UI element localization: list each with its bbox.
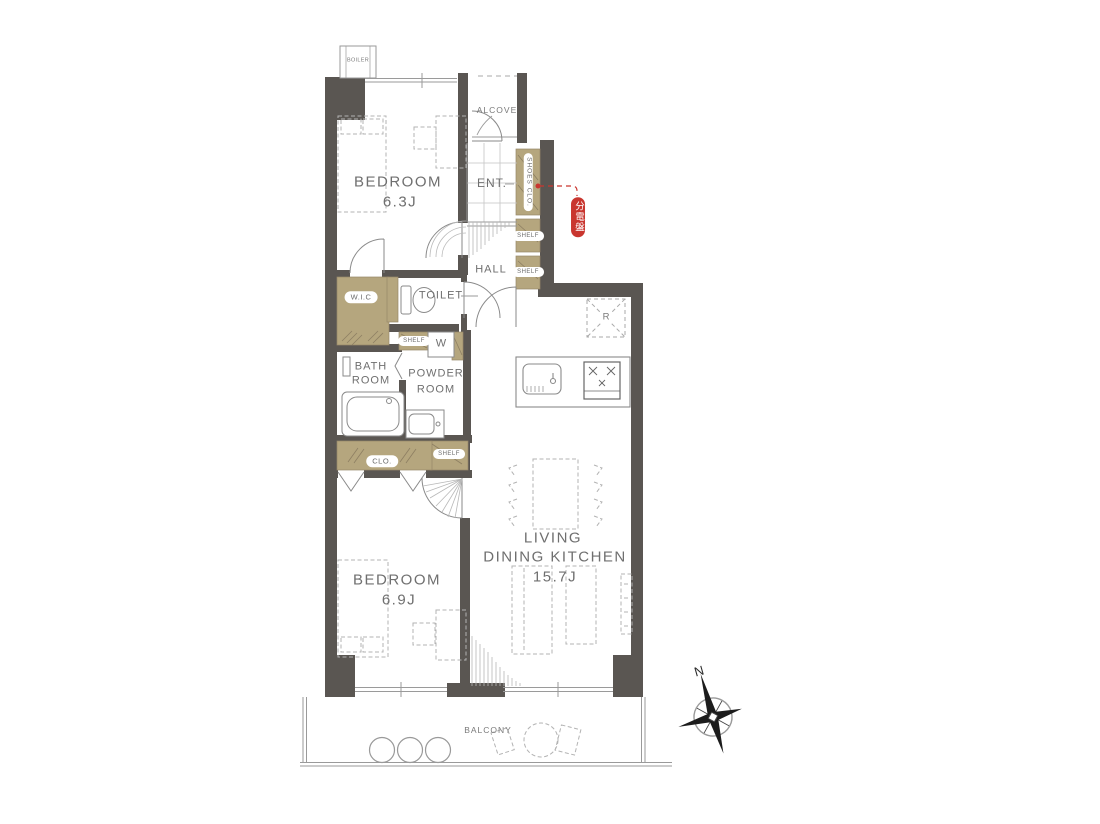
bedroom2-name: BEDROOM (353, 573, 441, 588)
bath-label-line1: BATH (355, 362, 388, 373)
alcove-leader (477, 116, 492, 135)
wic-label: W.I.C (345, 291, 378, 303)
bedroom1-chair (414, 127, 436, 149)
entrance-label: ENT. (477, 177, 507, 189)
shelf-label-2: SHELF (512, 267, 544, 277)
bedroom2-chair (413, 623, 435, 645)
bath-label-line2: ROOM (352, 376, 390, 387)
shoes-closet-label: SHOES CLO. (524, 153, 533, 211)
powder-label-line1: POWDER (408, 369, 464, 380)
washer-label: W (436, 339, 446, 350)
bedroom1-size: 6.3J (383, 195, 417, 210)
wic-door (350, 239, 384, 273)
hall-curved-door-arcs (430, 221, 466, 257)
dining-chairs (509, 465, 602, 527)
shower-fixture (343, 357, 350, 376)
floorplan-drawing (0, 0, 1100, 824)
bedroom1-name: BEDROOM (354, 175, 442, 190)
bath-bifold-door (395, 353, 402, 379)
vanity-sink (406, 410, 444, 438)
floorplan-canvas: BOILER BEDROOM 6.3J ALCOVE ENT. SHOES CL… (0, 0, 1100, 824)
bedroom2-size: 6.9J (382, 593, 416, 608)
refrigerator-label: R (601, 311, 612, 323)
hall-label: HALL (475, 265, 507, 276)
distribution-board-label: 分電盤 (571, 197, 585, 237)
ldk-size: 15.7J (533, 570, 577, 585)
shelf-label-3: SHELF (398, 336, 430, 346)
closet-label: CLO. (366, 455, 398, 467)
wic-side-shelf (387, 277, 398, 322)
compass-rose (666, 665, 752, 763)
shelf-label-4: SHELF (433, 449, 465, 459)
balcony-label: BALCONY (464, 726, 512, 735)
ldk-name-line1: LIVING (524, 531, 582, 546)
toilet-door (464, 282, 500, 318)
ldk-name-line2: DINING KITCHEN (483, 550, 627, 565)
bedroom1-bed (338, 116, 386, 212)
powder-label-line2: ROOM (417, 385, 455, 396)
boiler-label: BOILER (347, 58, 369, 64)
bedroom1-door (426, 222, 462, 258)
shelf-label-1: SHELF (512, 231, 544, 241)
alcove-label: ALCOVE (477, 106, 518, 115)
dining-table (533, 459, 578, 529)
toilet-label: TOILET (419, 291, 463, 302)
balcony-planters (370, 738, 451, 763)
ldk-door (476, 287, 516, 327)
tv-board (621, 574, 632, 634)
